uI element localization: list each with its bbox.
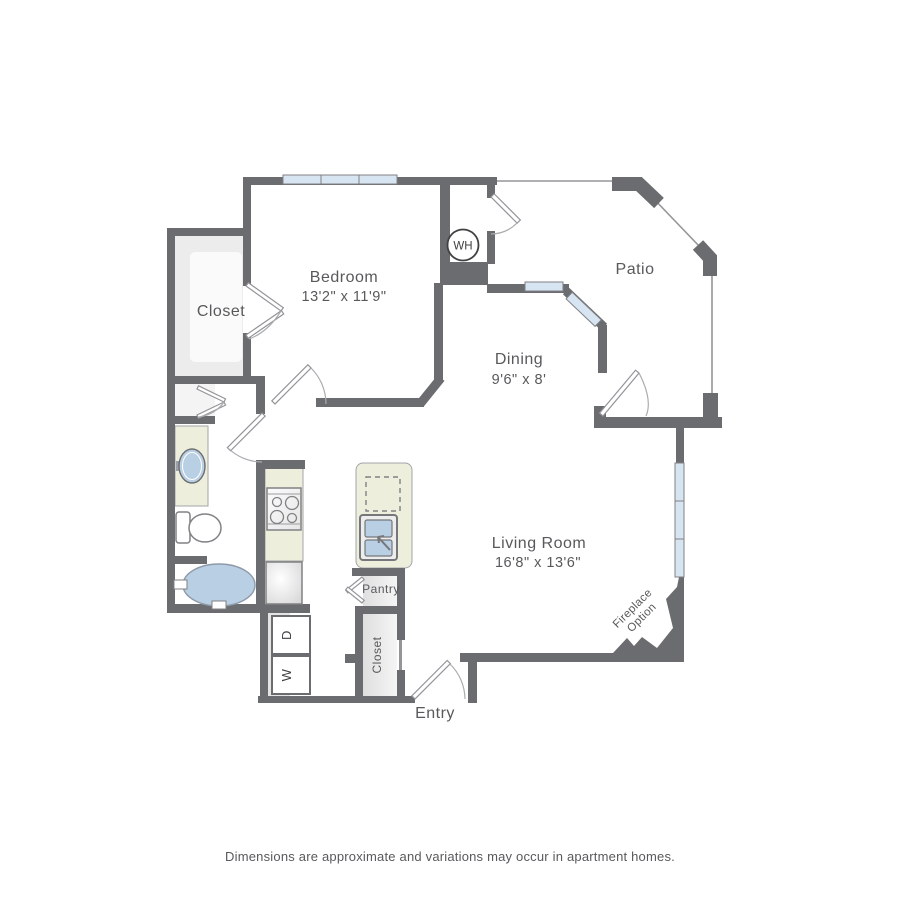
patio-post-mid	[698, 245, 710, 276]
wh-door-leaf	[491, 194, 520, 223]
wall-bath-kitchen	[256, 460, 265, 612]
patio-post-bottom	[703, 393, 718, 425]
wall-pantry-right	[397, 568, 405, 640]
bathroom-door-leaf	[227, 413, 265, 451]
washer-label: W	[279, 668, 294, 681]
wall-entry-closet-left	[355, 606, 363, 698]
refrigerator-icon	[266, 562, 302, 604]
wall-bedroom-right	[434, 283, 443, 383]
patio-post-top	[612, 184, 659, 203]
entry-closet-door-track	[399, 640, 402, 672]
wall-bedroom-left-lower	[243, 333, 251, 380]
entry-label: Entry	[415, 705, 455, 722]
disclaimer-text: Dimensions are approximate and variation…	[225, 849, 675, 864]
dining-window	[525, 282, 563, 291]
wall-hall-stub	[256, 376, 265, 414]
toilet-tank-icon	[176, 512, 190, 543]
tub-faucet-icon	[174, 580, 187, 589]
railing-diagonal	[652, 197, 700, 247]
living-window	[675, 463, 684, 577]
entry-closet-label: Closet	[370, 636, 384, 673]
living-room-label: Living Room	[492, 535, 586, 552]
wall-bath-bottom	[167, 604, 310, 613]
dining-dims: 9'6" x 8'	[492, 372, 547, 388]
bedroom-window	[283, 175, 397, 184]
floorplan-drawing: Bedroom 13'2" x 11'9" Closet WH Patio Di…	[0, 0, 900, 900]
wall-living-bottom	[460, 653, 600, 662]
bedroom-dims: 13'2" x 11'9"	[302, 289, 387, 305]
wall-tub-shelf	[167, 556, 207, 564]
wall-entry-bottom	[258, 696, 415, 703]
bathtub-icon	[183, 564, 255, 606]
entry-door-leaf	[412, 660, 451, 699]
wall-wh-block	[440, 262, 488, 285]
tub-drain-icon	[212, 601, 226, 609]
entry-door-arc	[450, 664, 465, 699]
toilet-bowl-icon	[189, 514, 221, 542]
wall-entry-closet-right-lower	[397, 670, 405, 698]
sink-basin-upper	[365, 520, 392, 537]
bedroom-door-leaf	[272, 365, 311, 404]
dining-label: Dining	[495, 351, 543, 368]
wall-dining-right	[598, 325, 607, 373]
windows	[283, 175, 684, 577]
wall-living-right-upper	[676, 424, 684, 468]
closet-door-leaf-upper	[246, 283, 283, 311]
water-heater-label: WH	[453, 241, 472, 253]
wall-wh-right-lower	[487, 231, 495, 264]
patio-railing	[497, 181, 718, 425]
bedroom-closet-label: Closet	[197, 303, 245, 320]
pantry-label: Pantry	[362, 582, 400, 596]
wall-kitchen-top	[256, 460, 305, 469]
wall-bedroom-bottom	[316, 398, 424, 407]
wall-closet-stub	[345, 654, 357, 663]
wall-linen-bottom	[167, 416, 215, 424]
wall-closet-top	[167, 228, 250, 236]
patio-door-leaf	[600, 370, 639, 416]
dining-angled-window	[566, 292, 601, 326]
bathroom-door-arc	[228, 448, 262, 462]
patio-door-arc	[639, 373, 648, 416]
wall-laundry-left	[260, 610, 268, 703]
living-room-dims: 16'8" x 13'6"	[495, 555, 581, 571]
bedroom-label: Bedroom	[310, 269, 378, 286]
floorplan-page: Bedroom 13'2" x 11'9" Closet WH Patio Di…	[0, 0, 900, 900]
dryer-label: D	[279, 630, 294, 640]
wall-closet-bottom	[167, 376, 265, 384]
patio-label: Patio	[616, 261, 655, 278]
